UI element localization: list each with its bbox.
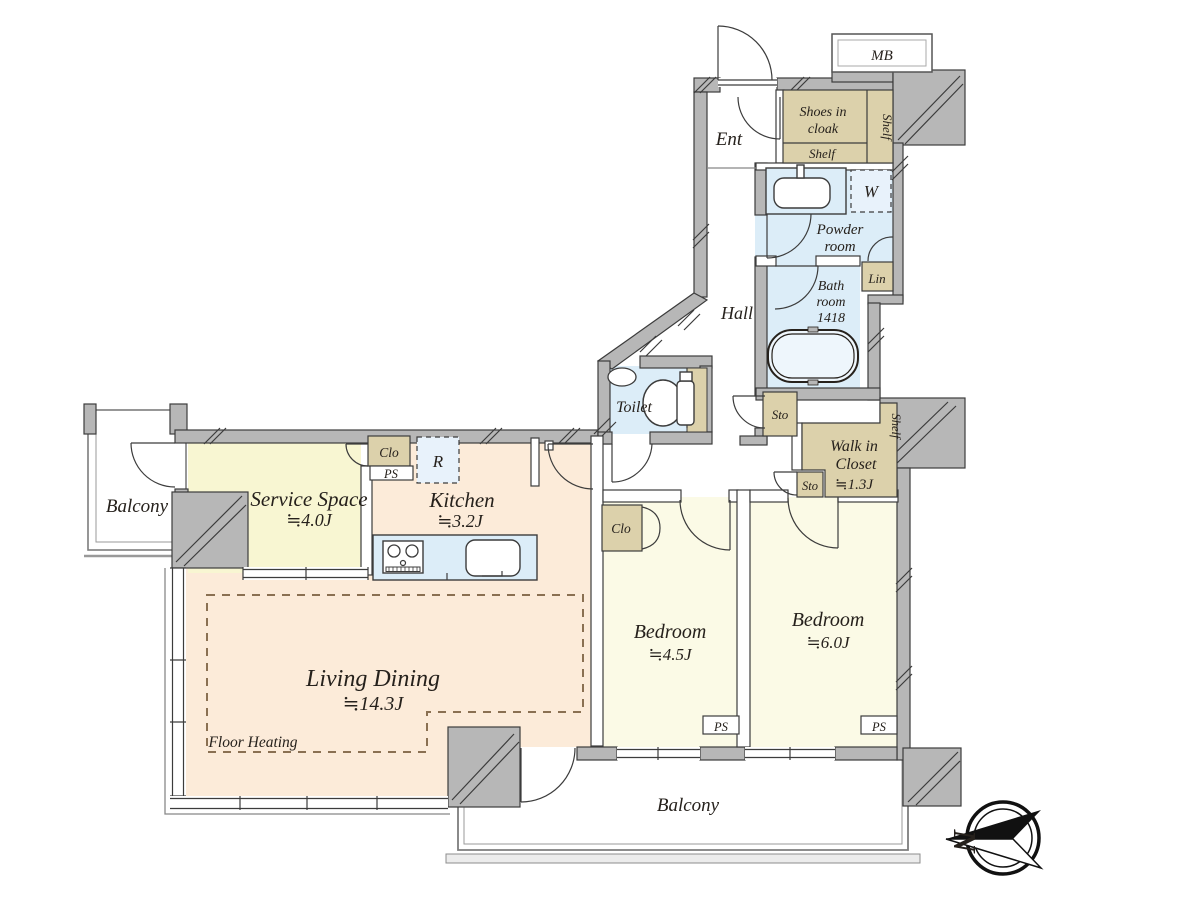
- balcony-left-label: Balcony: [106, 496, 169, 517]
- window-service-living: [243, 567, 368, 580]
- wic-label-2: Closet: [836, 456, 877, 473]
- shoes-cloak-label-2: cloak: [808, 122, 839, 137]
- kitchen-size-label: ≒3.2J: [437, 511, 484, 531]
- bedroom-a-size-label: ≒4.5J: [648, 645, 692, 664]
- wall-block-se: [903, 748, 961, 806]
- room-floors: [184, 163, 897, 796]
- storage-upper-label: Sto: [772, 407, 789, 422]
- shoes-cloak-label-1: Shoes in: [799, 105, 846, 120]
- service-space-size-label: ≒4.0J: [286, 510, 333, 530]
- washbasin-counter: [766, 165, 846, 214]
- closet-bedroom-label: Clo: [611, 521, 631, 536]
- faucet-icon: [797, 165, 804, 178]
- bath-label-1: Bath: [818, 279, 844, 294]
- compass-north-label: N: [947, 828, 983, 854]
- door-shoes-cloak: [738, 97, 780, 139]
- living-dining-label: Living Dining: [305, 666, 440, 692]
- window-bottom-living: [170, 796, 448, 810]
- bath-label-3: 1418: [817, 311, 845, 326]
- living-dining-size-label: ≒14.3J: [343, 693, 405, 715]
- door-entrance: [718, 26, 772, 80]
- floor-plan-drawing: MB Ent Shoes in cloak Shelf Shelf W Powd…: [0, 0, 1200, 900]
- floor-heating-label: Floor Heating: [207, 734, 297, 751]
- bedroom-a-label: Bedroom: [634, 621, 707, 643]
- closet-kitchen-label: Clo: [379, 445, 399, 460]
- bathtub-icon: [768, 327, 858, 385]
- kitchen-counter: [373, 535, 537, 580]
- powder-label-2: room: [824, 239, 855, 255]
- window-left-wall: [170, 568, 186, 796]
- balcony-left-post: [84, 404, 96, 434]
- door-toilet: [612, 444, 652, 482]
- door-balcony-bottom: [521, 748, 575, 802]
- ps-kitchen-label: PS: [383, 467, 399, 481]
- service-space-label: Service Space: [250, 487, 367, 511]
- washer-label: W: [864, 182, 880, 201]
- wic-label-1: Walk in: [830, 438, 878, 455]
- wic-size-label: ≒1.3J: [835, 477, 874, 493]
- powder-label-1: Powder: [816, 222, 864, 238]
- door-storage-upper: [733, 396, 765, 428]
- floor-plan-page: MB Ent Shoes in cloak Shelf Shelf W Powd…: [0, 0, 1200, 900]
- window-bedroom-a: [617, 747, 700, 760]
- bedroom-b-label: Bedroom: [792, 609, 865, 631]
- corner-sink-icon: [608, 368, 636, 386]
- shelf-cloak-bottom-label: Shelf: [809, 146, 837, 161]
- compass: N: [946, 802, 1041, 874]
- kitchen-label: Kitchen: [428, 488, 494, 512]
- hall-label: Hall: [720, 303, 753, 323]
- shelf-cloak-side-label: Shelf: [880, 114, 895, 142]
- mb-label: MB: [870, 48, 893, 64]
- ps-bedroom-a-label: PS: [713, 720, 729, 734]
- ent-label: Ent: [715, 129, 743, 150]
- ps-bedroom-b-label: PS: [871, 720, 887, 734]
- linen-label: Lin: [867, 271, 885, 286]
- bedroom-b-size-label: ≒6.0J: [806, 633, 850, 652]
- fridge-label: R: [432, 452, 444, 471]
- shelf-wic-label: Shelf: [889, 414, 903, 441]
- storage-lower-label: Sto: [802, 479, 818, 493]
- window-bedroom-b: [745, 747, 835, 760]
- balcony-bottom-label: Balcony: [657, 795, 720, 816]
- toilet-label: Toilet: [616, 399, 652, 416]
- bath-label-2: room: [816, 295, 845, 310]
- wall-block-sw-service: [172, 492, 248, 568]
- kitchen-sink-icon: [466, 540, 520, 576]
- stove-icon: [383, 541, 423, 573]
